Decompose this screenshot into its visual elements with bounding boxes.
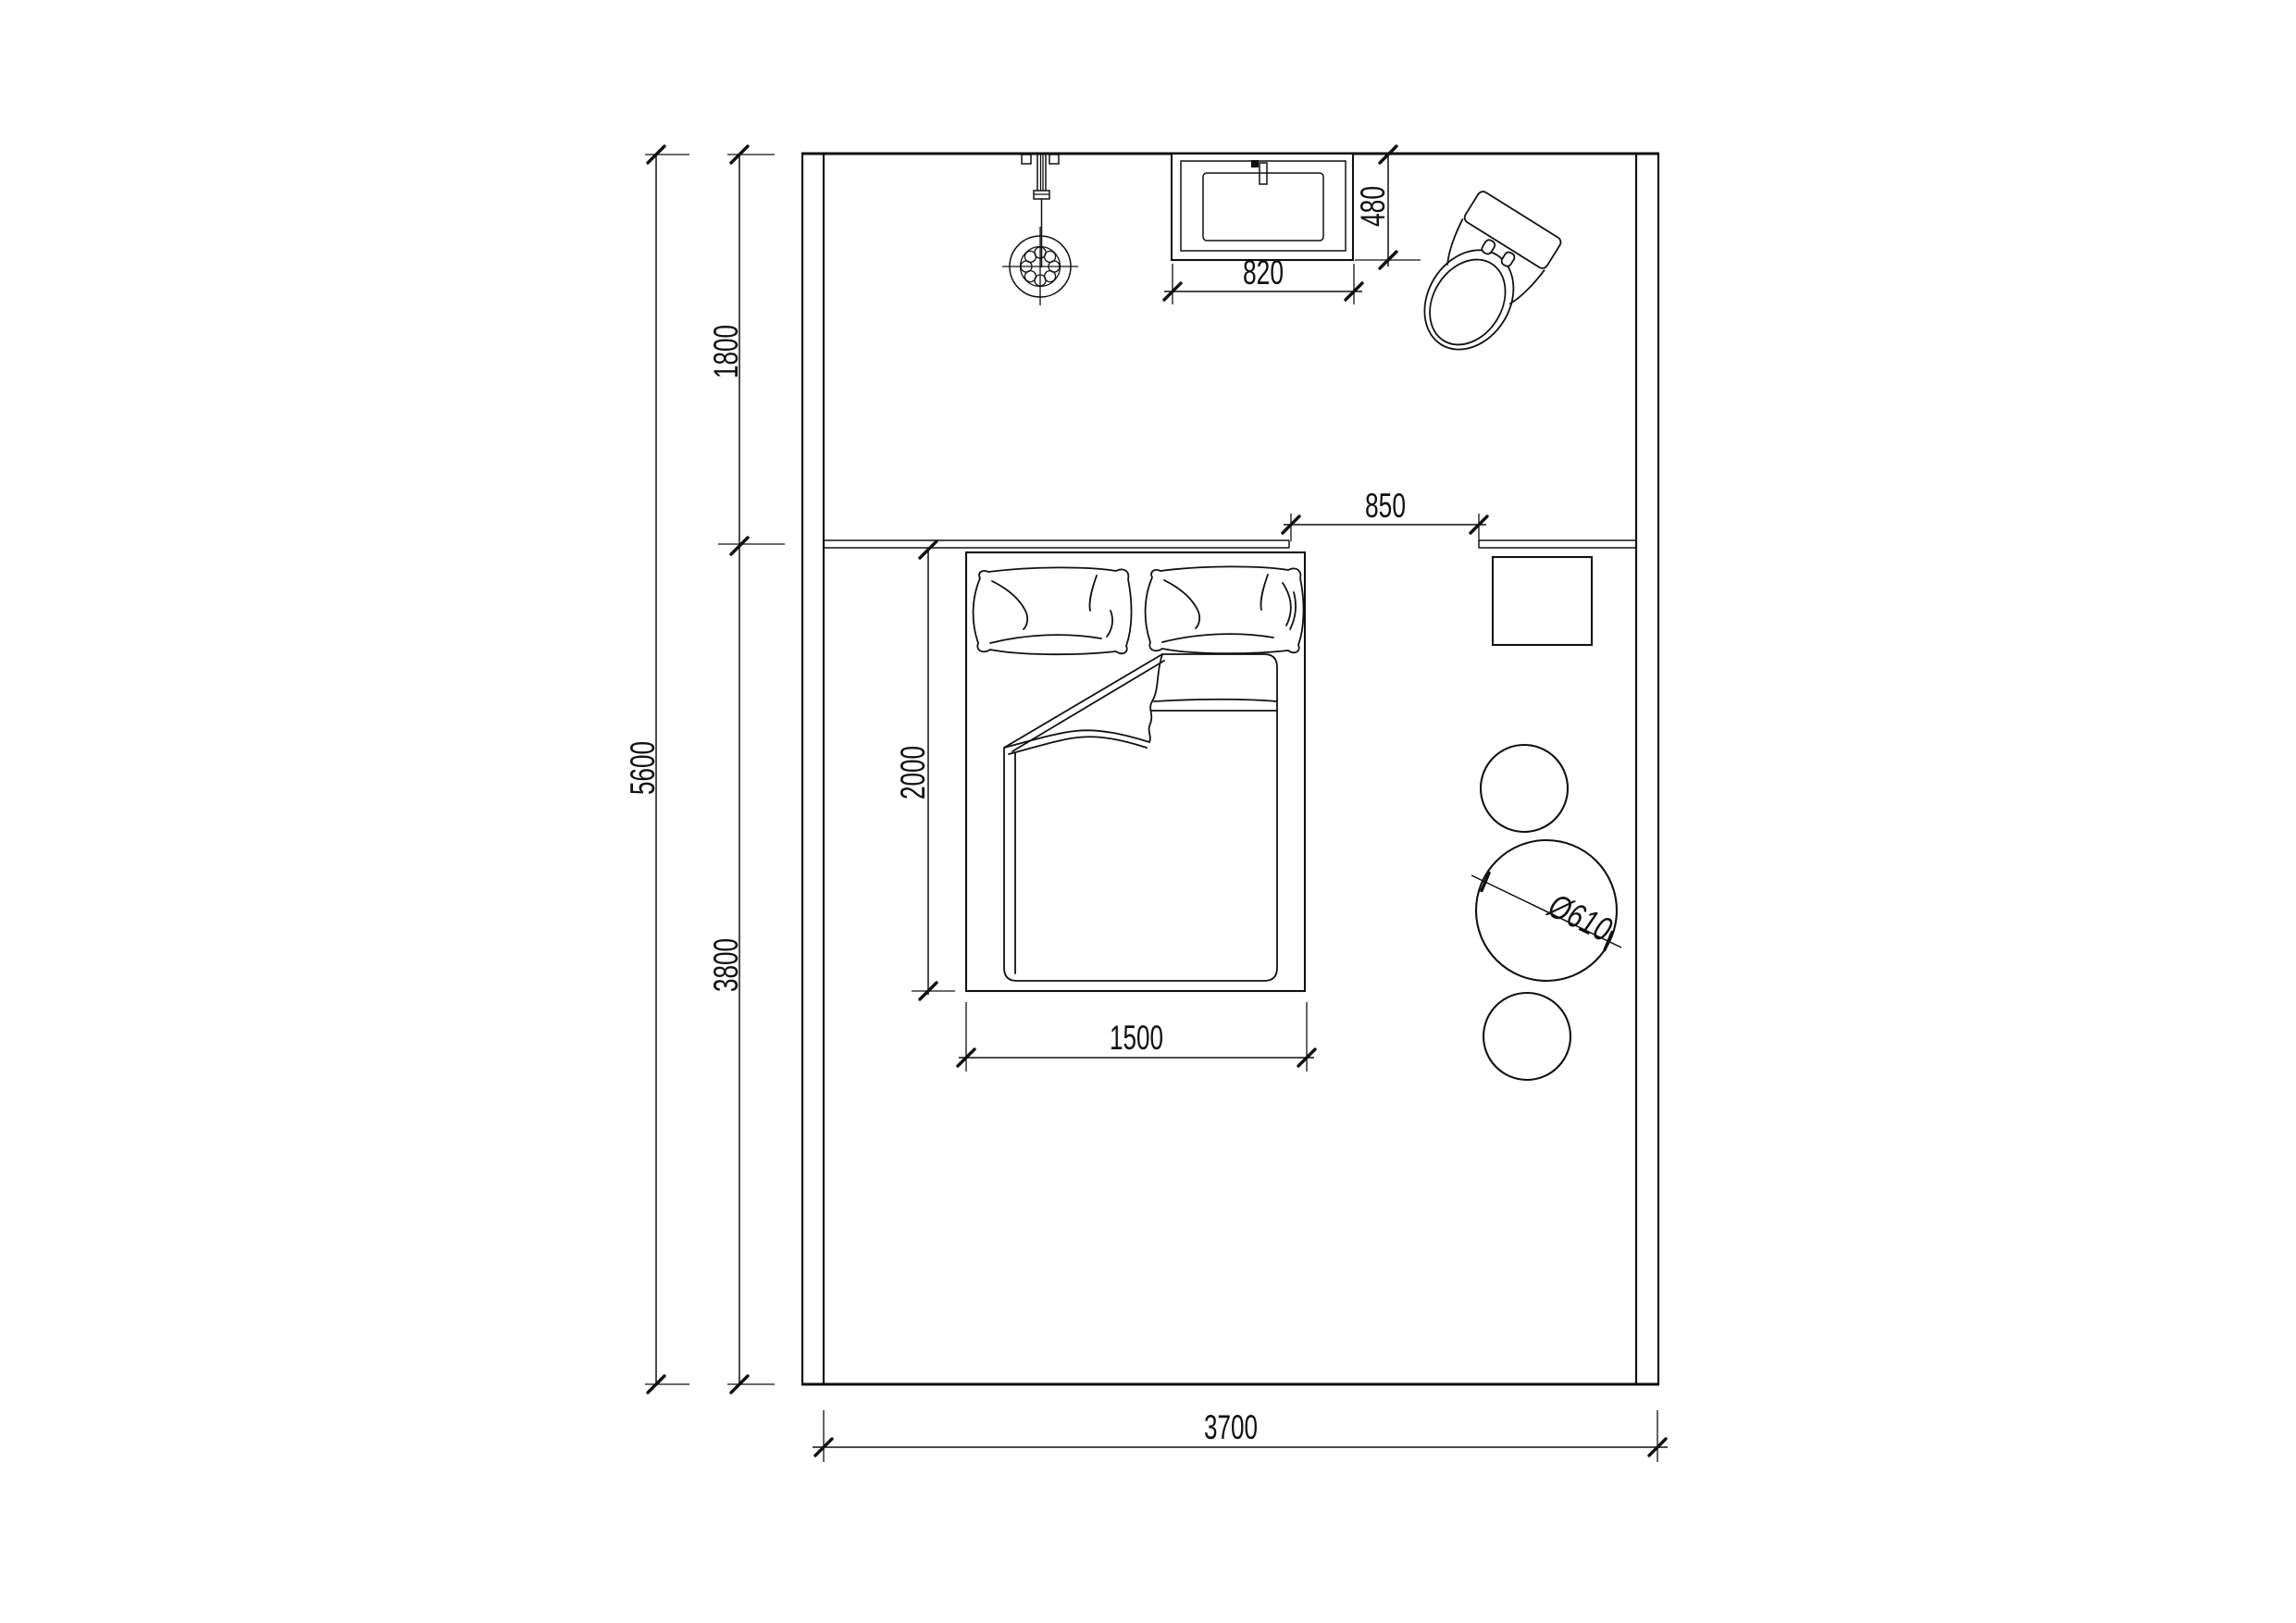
dimension-bed-to-sideboard-gap: 850	[1283, 487, 1487, 541]
shower-wall-tab-left	[1022, 155, 1031, 164]
side-table-square	[1493, 557, 1592, 645]
stool-bottom	[1483, 993, 1570, 1080]
washbasin-faucet-base	[1251, 160, 1259, 167]
shower-wall-tab-right	[1049, 155, 1059, 164]
dimension-bed-length: 2000	[894, 541, 955, 999]
dimension-total-height: 5600	[624, 146, 664, 1393]
headboard-shelf-left	[824, 540, 1289, 548]
washbasin	[1172, 154, 1353, 260]
bed	[966, 552, 1305, 991]
dim-label-upper-section: 1800	[707, 325, 745, 378]
dim-label-room-width: 3700	[1204, 1408, 1258, 1446]
floor-plan-drawing: 5600 1800 3800 2000 1500	[0, 0, 2296, 1623]
dim-label-washbasin-width: 820	[1243, 254, 1284, 291]
dim-label-total-height: 5600	[624, 741, 662, 795]
dimension-washbasin-depth: 480	[1354, 146, 1421, 268]
dimension-sections: 1800 3800	[707, 146, 748, 1393]
stool-top	[1481, 745, 1568, 832]
dim-label-bed-width: 1500	[1110, 1019, 1163, 1057]
dim-label-gap: 850	[1365, 487, 1406, 525]
dim-label-washbasin-depth: 480	[1354, 186, 1392, 227]
headboard-shelf-right	[1479, 540, 1636, 548]
dim-label-bed-length: 2000	[894, 746, 932, 799]
dimension-washbasin-width: 820	[1164, 254, 1362, 304]
floor-plan-sheet: 5600 1800 3800 2000 1500	[0, 0, 2296, 1623]
toilet	[1400, 190, 1563, 370]
dim-label-lower-section: 3800	[707, 938, 745, 992]
washbasin-counter	[1172, 154, 1353, 260]
dimension-bed-width: 1500	[958, 1002, 1315, 1072]
dimension-room-width: 3700	[813, 1408, 1668, 1462]
shower-fixture	[1002, 155, 1078, 305]
